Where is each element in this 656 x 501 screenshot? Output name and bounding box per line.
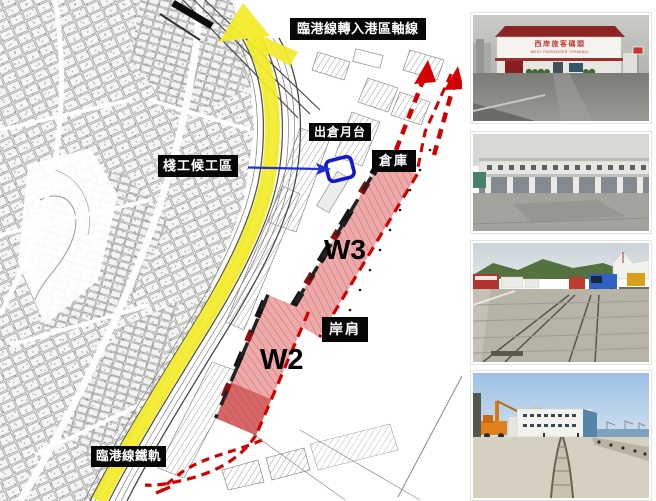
photo-warehouse-building (470, 131, 652, 234)
terminal-sign-zh: 西岸旅客碼頭 (535, 39, 586, 48)
label-quay-shoulder: 岸肩 (322, 317, 368, 342)
label-outbound-platform: 出倉月台 (309, 123, 371, 141)
white-building (509, 406, 597, 437)
terminal-sign-en: WEST PASSENGER TERMINAL (531, 50, 590, 54)
port-map (0, 0, 462, 501)
yellow-machine (627, 273, 645, 286)
entrance (553, 62, 563, 73)
port-plan-figure: 臨港線轉入港區軸線 棧工候工區 出倉月台 倉庫 岸肩 臨港線鐵軌 W3 W2 西… (0, 0, 656, 501)
photo-wharf-road (470, 240, 652, 365)
label-worker-waiting-area: 棧工候工區 (158, 155, 238, 177)
photo-passenger-terminal: 西岸旅客碼頭 WEST PASSENGER TERMINAL (470, 12, 652, 124)
label-axis-line: 臨港線轉入港區軸線 (290, 18, 426, 40)
red-door (505, 61, 523, 73)
distant-building (476, 39, 484, 73)
person (543, 433, 545, 437)
label-harbor-rail-track: 臨港線鐵軌 (91, 446, 166, 467)
photo-wharf-rails (470, 370, 652, 501)
side-structure (623, 53, 637, 73)
label-warehouse: 倉庫 (372, 150, 416, 172)
port-map-canvas (0, 0, 462, 501)
warehouse (479, 158, 649, 194)
zone-label-w3: W3 (324, 234, 366, 266)
terminal-building: 西岸旅客碼頭 WEST PASSENGER TERMINAL (495, 26, 625, 73)
person (577, 433, 579, 437)
drain-grate (491, 351, 523, 356)
zone-label-w2: W2 (260, 344, 304, 377)
green-equipment (473, 172, 486, 188)
glass-stairwell (583, 409, 597, 437)
